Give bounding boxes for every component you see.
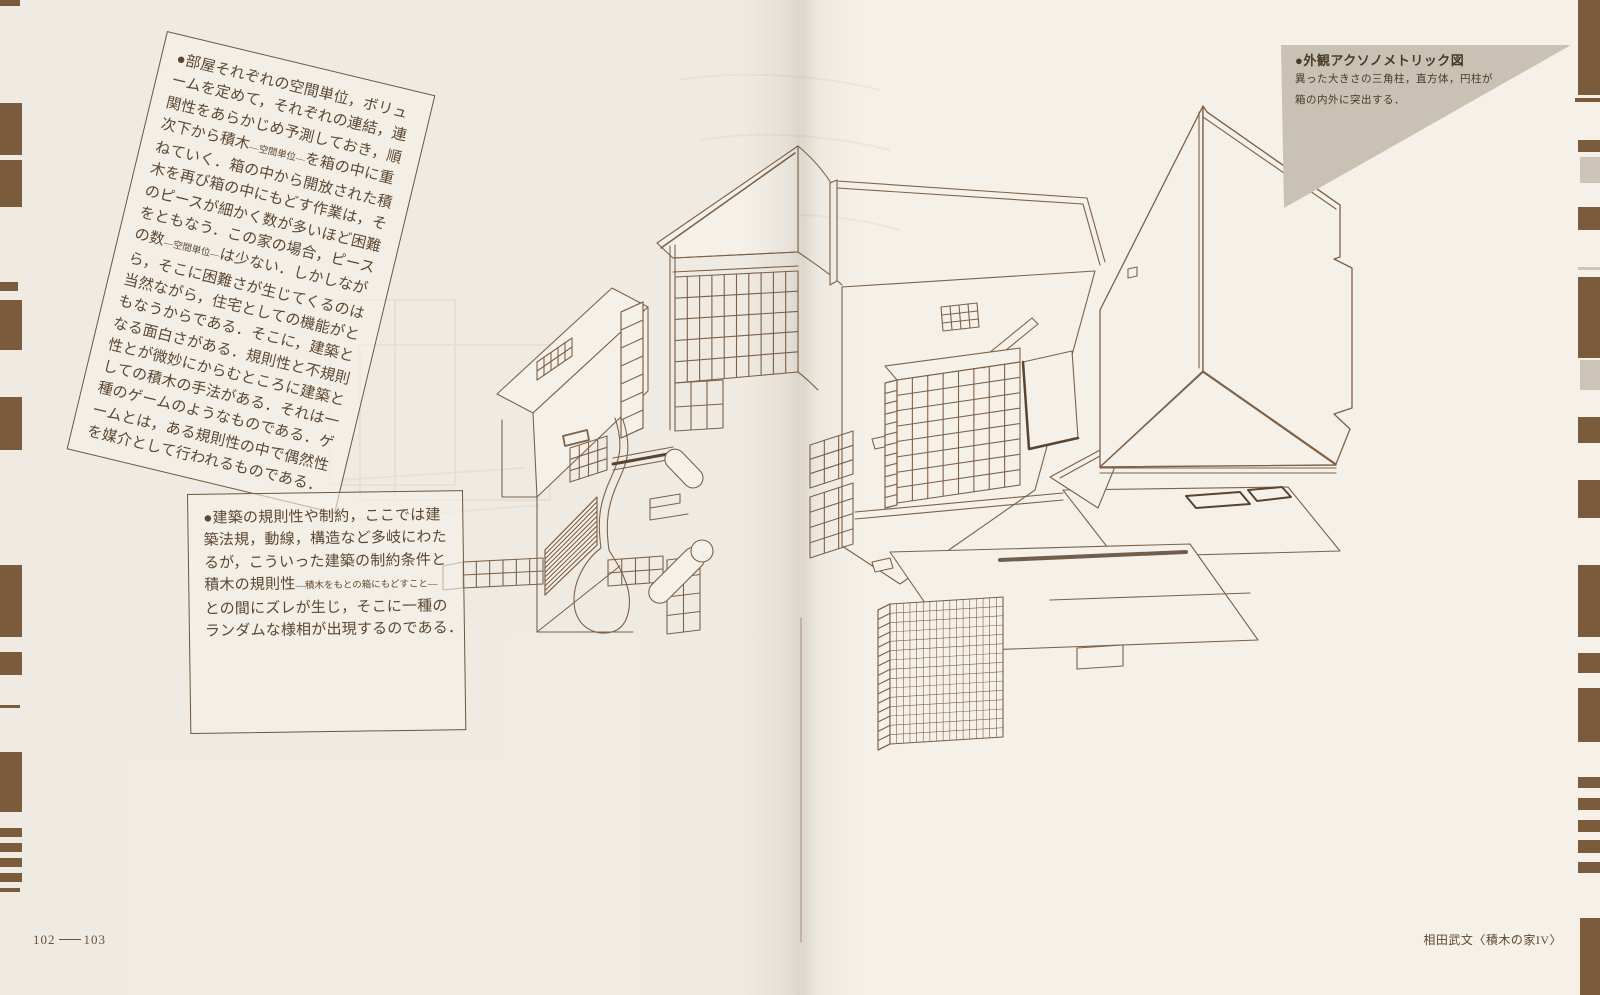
page-edge-mark (1580, 157, 1600, 183)
page-edge-mark (0, 300, 22, 350)
river-line (599, 418, 628, 550)
page-edge-mark (0, 705, 20, 708)
page-edge-mark (0, 843, 22, 852)
page-edge-mark (1578, 480, 1600, 518)
main-window-grid-lower (675, 380, 723, 431)
page-edge-mark (0, 397, 22, 450)
text-line: 異った大きさの三角柱，直方体，円柱が (1295, 69, 1555, 90)
left-page-number: 102 (33, 932, 56, 947)
page-number-rule (59, 939, 81, 940)
page-edge-mark (0, 752, 22, 812)
page-edge-mark (0, 652, 22, 675)
page-edge-mark (1578, 417, 1600, 443)
text-line: 積木の規則性—積木をもとの箱にもどすこと— (204, 571, 448, 599)
page-edge-mark (1578, 565, 1600, 637)
architect-caption: 相田武文〈積木の家IV〉 (1400, 931, 1562, 948)
text-line: ランダムな様相が出現するのである． (205, 618, 449, 644)
page-edge-mark (1578, 207, 1600, 230)
text-line: るが，こういった建築の制約条件と (204, 549, 448, 575)
page-edge-mark (0, 828, 22, 837)
tile-strip-left (463, 558, 543, 588)
page-edge-mark (0, 282, 18, 291)
text-line: 築法規，動線，構造など多岐にわた (204, 527, 448, 553)
page-edge-mark (0, 858, 22, 867)
figure-caption-lines: 異った大きさの三角柱，直方体，円柱が箱の内外に突出する． (1295, 69, 1555, 111)
page-edge-mark (1578, 277, 1600, 358)
page-edge-mark (0, 103, 22, 155)
annotation-box-2: ●建築の規則性や制約，ここでは建築法規，動線，構造など多岐にわたるが，こういった… (187, 490, 466, 734)
drawing-lines (443, 106, 1352, 942)
pipe-upper (661, 445, 707, 492)
tilted-panel (1023, 351, 1078, 449)
figure-caption: ●外観アクソノメトリック図 異った大きさの三角柱，直方体，円柱が箱の内外に突出す… (1295, 50, 1555, 111)
page-edge-mark (0, 873, 22, 882)
page-edge-mark (1578, 862, 1600, 873)
page-edge-mark (0, 0, 20, 6)
page-edge-mark (1578, 0, 1600, 95)
roof-wedge (657, 146, 798, 258)
text-line: 箱の内外に突出する． (1295, 90, 1555, 111)
page-edge-mark (1575, 98, 1600, 102)
main-window-grid (675, 271, 798, 383)
page-edge-mark (1578, 777, 1600, 788)
page-edge-mark (0, 888, 20, 892)
annotation-box-2-lines: ●建築の規則性や制約，ここでは建築法規，動線，構造など多岐にわたるが，こういった… (203, 504, 449, 643)
page-edge-mark (1578, 140, 1600, 152)
page-edge-mark (0, 160, 22, 207)
page-edge-mark (1578, 820, 1600, 832)
page-edge-mark (1578, 798, 1600, 810)
page-edge-mark (1578, 653, 1600, 673)
page-edge-mark (1580, 918, 1600, 995)
right-page-number: 103 (84, 932, 107, 947)
page-edge-mark (1578, 688, 1600, 742)
pipe-end-cap (691, 540, 713, 562)
page-edge-mark (1580, 360, 1600, 390)
page-edge-mark (1578, 840, 1600, 853)
terrace-blob (574, 548, 629, 633)
page-edge-mark (0, 565, 22, 637)
page-edge-mark (1578, 267, 1600, 270)
figure-caption-title: ●外観アクソノメトリック図 (1295, 50, 1555, 69)
page-numbers: 102103 (33, 932, 106, 948)
book-spread: ●部屋それぞれの空間単位，ボリュームを定めて，それぞれの連結，連関性をあらかじめ… (0, 0, 1600, 995)
